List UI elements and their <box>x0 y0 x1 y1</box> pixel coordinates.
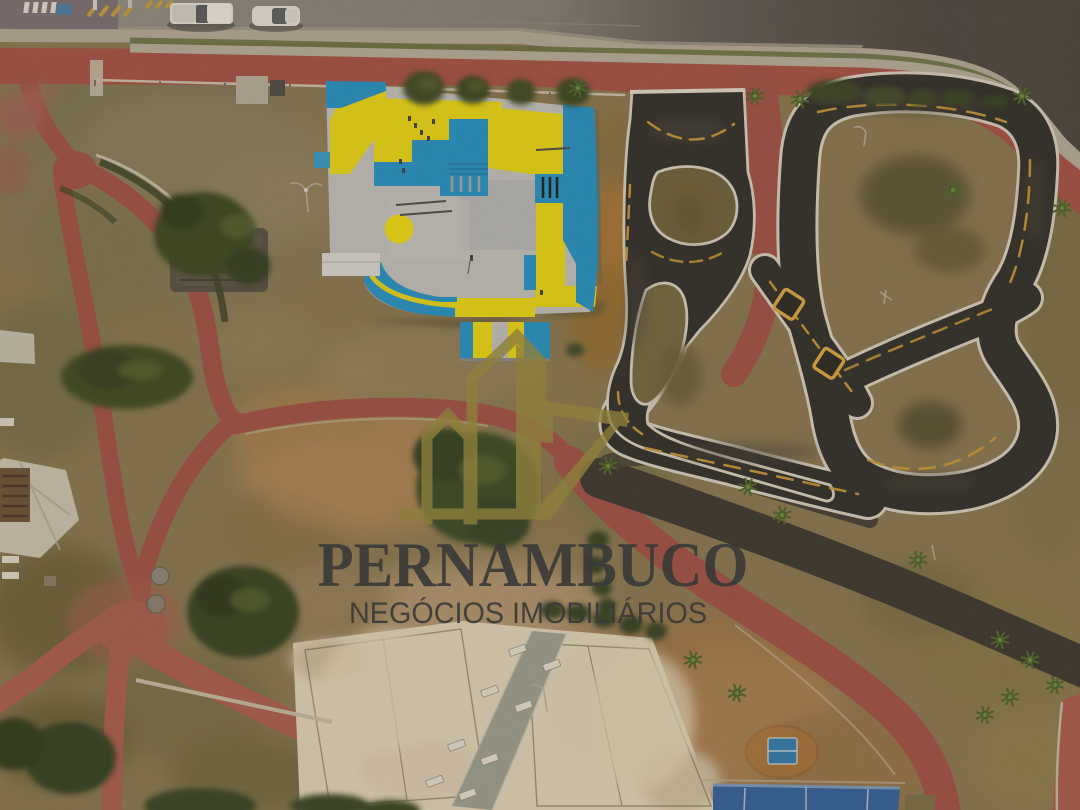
svg-text:PERNAMBUCO: PERNAMBUCO <box>318 529 749 600</box>
svg-text:NEGÓCIOS IMOBILIÁRIOS: NEGÓCIOS IMOBILIÁRIOS <box>349 597 707 630</box>
